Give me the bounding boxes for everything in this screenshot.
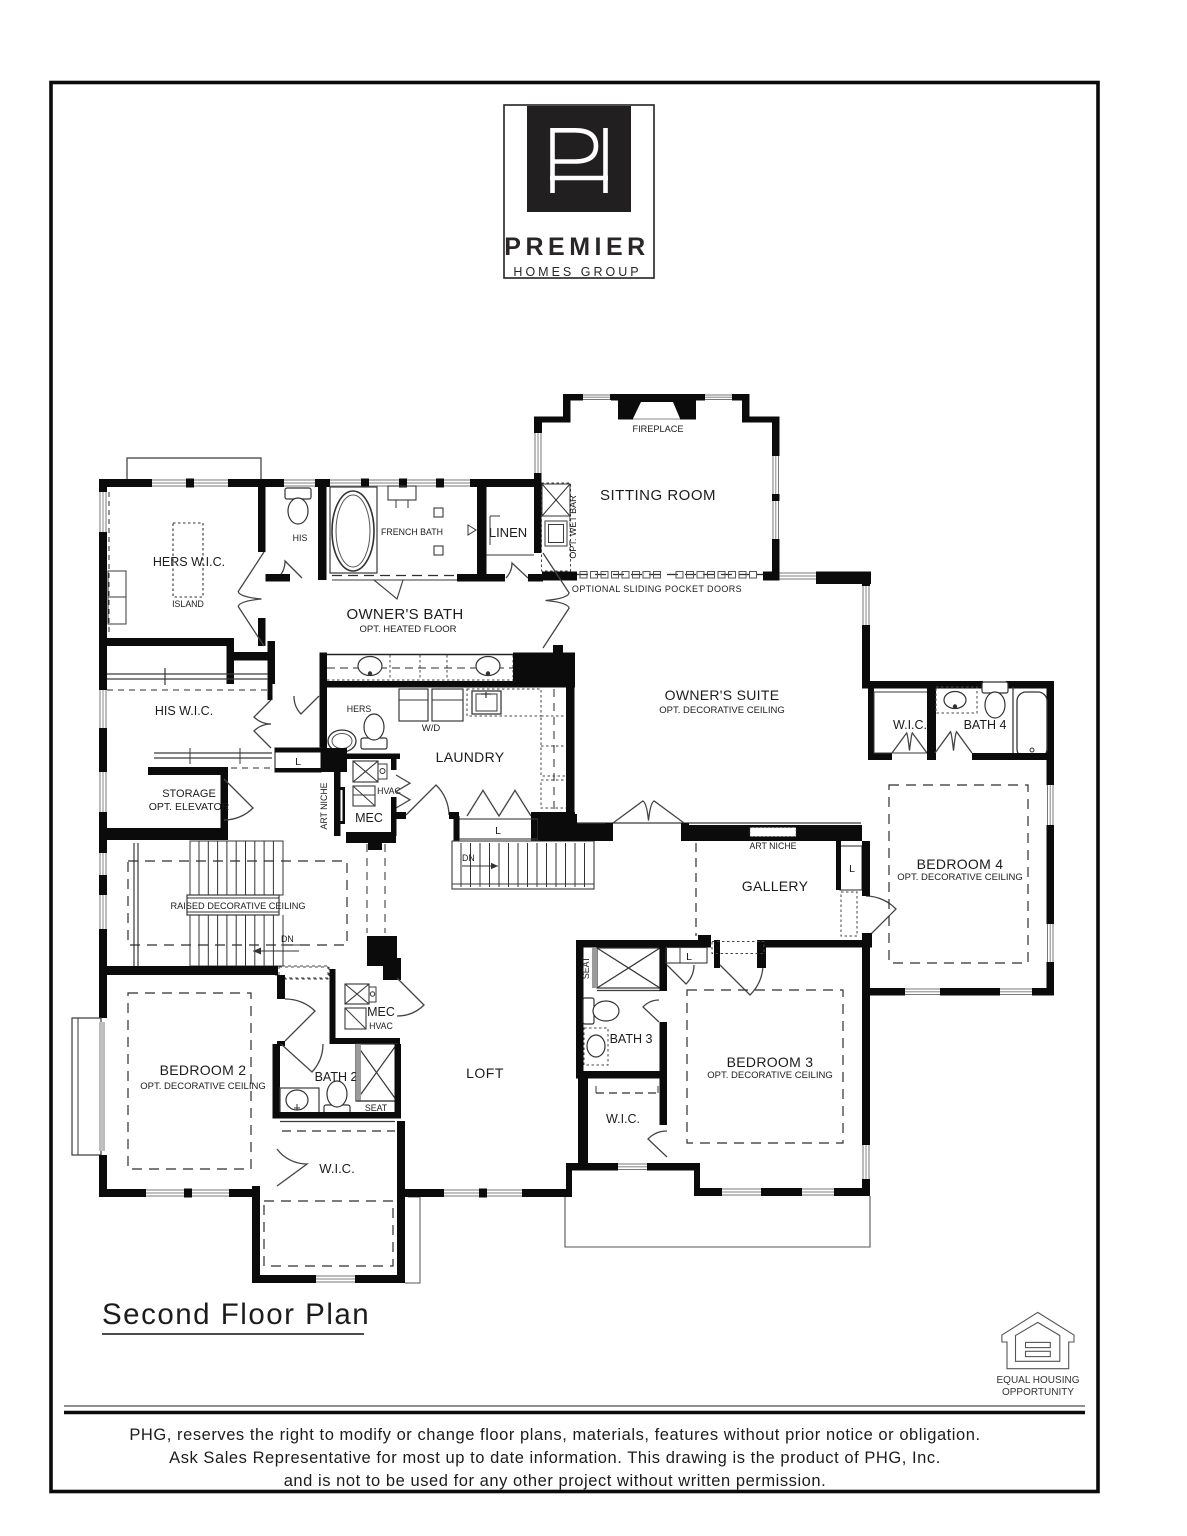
svg-text:HVAC: HVAC [369, 1021, 393, 1031]
svg-text:LOFT: LOFT [466, 1065, 504, 1081]
svg-text:DN: DN [462, 853, 475, 863]
svg-text:and is not to be used for any: and is not to be used for any other proj… [284, 1472, 827, 1490]
svg-text:OPPORTUNITY: OPPORTUNITY [1002, 1387, 1074, 1398]
svg-text:L: L [849, 863, 855, 875]
svg-text:LAUNDRY: LAUNDRY [436, 749, 505, 765]
svg-text:PHG, reserves the right to mod: PHG, reserves the right to modify or cha… [129, 1426, 980, 1444]
svg-text:HIS W.I.C.: HIS W.I.C. [155, 704, 213, 718]
svg-text:RAISED DECORATIVE CEILING: RAISED DECORATIVE CEILING [170, 901, 305, 911]
svg-text:HERS W.I.C.: HERS W.I.C. [153, 555, 225, 569]
svg-text:DN: DN [281, 934, 294, 944]
svg-text:L: L [686, 951, 692, 963]
svg-text:MEC: MEC [367, 1005, 395, 1019]
svg-text:HOMES GROUP: HOMES GROUP [513, 265, 641, 279]
svg-text:L: L [295, 756, 301, 768]
svg-text:BEDROOM 3: BEDROOM 3 [727, 1054, 814, 1070]
svg-text:ART NICHE: ART NICHE [749, 841, 796, 851]
svg-text:LINEN: LINEN [489, 525, 527, 540]
svg-text:STORAGE: STORAGE [162, 788, 216, 800]
svg-text:FRENCH BATH: FRENCH BATH [381, 527, 443, 537]
svg-text:OPT. DECORATIVE CEILING: OPT. DECORATIVE CEILING [897, 872, 1022, 883]
svg-text:ISLAND: ISLAND [172, 599, 204, 609]
svg-text:OPT. DECORATIVE CEILING: OPT. DECORATIVE CEILING [707, 1070, 832, 1081]
svg-text:W.I.C.: W.I.C. [606, 1112, 640, 1126]
svg-text:OPT. ELEVATOR: OPT. ELEVATOR [149, 801, 230, 813]
svg-text:OWNER'S BATH: OWNER'S BATH [346, 606, 463, 623]
svg-text:OPT. HEATED FLOOR: OPT. HEATED FLOOR [360, 624, 457, 635]
svg-text:SEAT: SEAT [581, 956, 591, 979]
svg-text:BATH 4: BATH 4 [964, 718, 1007, 732]
svg-text:BEDROOM 4: BEDROOM 4 [917, 856, 1004, 872]
svg-text:SEAT: SEAT [365, 1103, 388, 1113]
svg-text:OWNER'S SUITE: OWNER'S SUITE [665, 687, 780, 703]
svg-text:Ask Sales Representative for m: Ask Sales Representative for most up to … [169, 1449, 941, 1467]
svg-text:W/D: W/D [422, 723, 441, 734]
svg-text:SITTING ROOM: SITTING ROOM [600, 487, 716, 504]
svg-text:HIS: HIS [293, 533, 308, 543]
svg-text:MEC: MEC [355, 811, 383, 825]
svg-text:ART NICHE: ART NICHE [319, 782, 329, 829]
svg-text:L: L [495, 825, 501, 837]
svg-text:BATH 3: BATH 3 [610, 1032, 653, 1046]
svg-text:W.I.C.: W.I.C. [893, 718, 927, 732]
svg-text:W.I.C.: W.I.C. [319, 1161, 354, 1176]
svg-text:EQUAL HOUSING: EQUAL HOUSING [997, 1375, 1080, 1386]
svg-text:OPTIONAL SLIDING POCKET DOO: OPTIONAL SLIDING POCKET DOORS [572, 584, 742, 594]
svg-text:OPT. DECORATIVE CEILING: OPT. DECORATIVE CEILING [140, 1081, 265, 1092]
svg-text:PREMIER: PREMIER [504, 233, 649, 261]
svg-text:BEDROOM 2: BEDROOM 2 [160, 1062, 247, 1078]
svg-text:Second Floor Plan: Second Floor Plan [102, 1298, 370, 1331]
svg-text:OPT. WET BAR: OPT. WET BAR [568, 495, 578, 559]
svg-text:GALLERY: GALLERY [742, 878, 809, 894]
svg-text:FIREPLACE: FIREPLACE [632, 424, 683, 434]
svg-text:OPT. DECORATIVE CEILING: OPT. DECORATIVE CEILING [659, 705, 784, 716]
svg-text:HERS: HERS [347, 704, 372, 714]
